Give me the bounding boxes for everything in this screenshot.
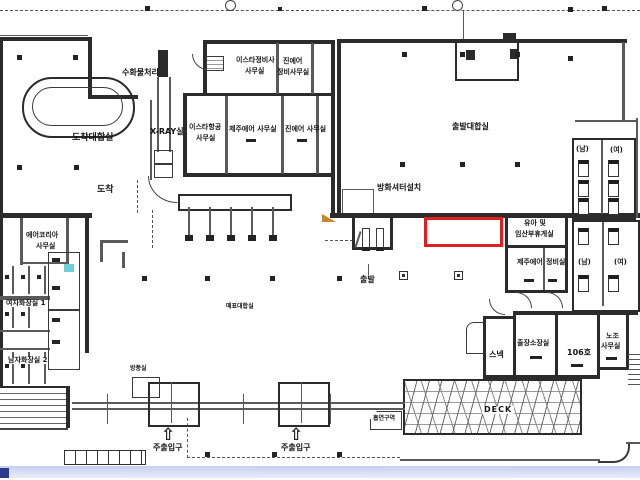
label-women-restroom: 여자화장실 1: [6, 300, 46, 307]
grid-tick: [602, 6, 607, 11]
baggage-carousel-inner: [32, 87, 123, 126]
label-manager-room: 출장소장실: [517, 340, 549, 347]
wall: [183, 93, 187, 177]
wall: [0, 35, 88, 36]
fixture-dot: [21, 364, 25, 368]
label-women: (여): [610, 147, 623, 154]
column-marker: [399, 271, 408, 280]
belt-foot: [206, 235, 214, 241]
belt-support: [230, 207, 232, 236]
label-smoking: 흡연구역: [373, 416, 395, 422]
wall: [0, 218, 3, 390]
entrance-arrow-icon: ⇧: [289, 425, 303, 445]
wall: [0, 37, 92, 41]
label-ticket-hall: 매표대합실: [226, 304, 254, 310]
wall: [185, 173, 335, 177]
bottom-band: [0, 466, 640, 478]
wall: [601, 140, 603, 214]
door-arc: [547, 292, 563, 308]
conveyor-line: [169, 77, 171, 152]
fixture-dot: [21, 312, 25, 316]
label-main-entrance: 주출입구: [281, 444, 310, 452]
porch-mullion: [171, 382, 172, 423]
wall: [0, 348, 50, 350]
toilet-fixture: [608, 275, 619, 292]
fixture-dot: [37, 275, 41, 279]
door-leaf: [362, 228, 370, 251]
toilet-fixture: [608, 228, 619, 245]
grid-tick: [422, 6, 427, 11]
wall: [331, 40, 335, 216]
wall: [505, 218, 508, 293]
label-main-entrance: 주출입구: [153, 444, 182, 452]
apron-curve: [598, 443, 630, 463]
fixture-dot: [5, 275, 9, 279]
label-maint-room: 정비실: [546, 259, 565, 266]
toilet-fixture: [578, 160, 589, 177]
label-eastar-office-2: 사무실: [196, 135, 215, 142]
wall: [337, 40, 341, 215]
fixture-dot: [52, 258, 60, 262]
wall: [575, 120, 638, 122]
wall: [390, 218, 393, 250]
column-marker: [460, 162, 465, 167]
fixture-dot: [21, 275, 25, 279]
wall: [513, 311, 638, 315]
toilet-fixture: [608, 180, 619, 197]
leader-line: [342, 189, 374, 190]
column-line: [107, 394, 108, 424]
label-men: (남): [578, 259, 591, 266]
stair-core: [455, 40, 519, 81]
wall: [20, 218, 23, 265]
label-women: (여): [614, 259, 627, 266]
wall: [100, 240, 103, 262]
column-marker: [17, 55, 22, 60]
label-underline: [530, 356, 542, 359]
column-marker: [74, 165, 79, 170]
column-marker: [400, 162, 405, 167]
wall: [543, 248, 545, 292]
label-underline: [606, 357, 617, 360]
column-marker: [142, 276, 147, 281]
wall: [565, 218, 568, 293]
label-eastar-maint-1: 이스타정비사: [236, 57, 275, 64]
label-aircoria-2: 사무실: [36, 243, 55, 250]
wall: [150, 100, 152, 180]
wall: [352, 247, 393, 250]
wall: [636, 118, 638, 218]
label-fire-shutter: 방화셔터설치: [377, 184, 421, 192]
toilet-fixture: [578, 180, 589, 197]
belt-foot: [185, 235, 193, 241]
wall: [316, 96, 319, 174]
label-underline: [548, 279, 557, 282]
label-union-2: 사무실: [601, 343, 620, 350]
label-eastar-maint-2: 사무실: [245, 68, 264, 75]
label-arrival-hall: 도착대합실: [72, 134, 113, 143]
highlight-box[interactable]: [424, 217, 503, 247]
column-marker: [205, 276, 210, 281]
belt-foot: [269, 235, 277, 241]
wall: [122, 252, 125, 268]
apron-line: [400, 459, 600, 461]
leader-line: [342, 189, 343, 215]
label-departure-hall: 출발대합실: [452, 123, 489, 131]
door-arc: [489, 299, 505, 315]
label-infant-2: 임산부휴게실: [515, 231, 554, 238]
stall-wall: [28, 266, 30, 294]
label-snack: 스넥: [489, 351, 504, 359]
porch-mullion: [301, 382, 302, 423]
belt-support: [272, 207, 274, 236]
column-line: [243, 394, 244, 424]
windbreak-box: [132, 377, 160, 398]
column-marker: [272, 452, 277, 457]
entrance-arrow-icon: ⇧: [161, 425, 175, 445]
floor-plan: 도착대합실 수화물처리장 도착 X-RAY실 이스타정비사 사무실 진에어 정비…: [0, 0, 640, 480]
column-marker: [73, 55, 78, 60]
wall: [0, 330, 50, 332]
door-arc: [516, 292, 532, 308]
wall: [0, 37, 3, 218]
toilet-fixture: [608, 198, 619, 215]
wall-block: [466, 50, 475, 60]
wall: [513, 311, 516, 378]
teal-marker: [64, 264, 74, 272]
column-marker: [568, 56, 573, 61]
column-marker: [460, 52, 465, 57]
toilet-fixture: [608, 160, 619, 177]
column-marker: [454, 271, 463, 280]
column-marker: [337, 276, 342, 281]
column-marker: [515, 162, 520, 167]
ramp-wedge: [322, 214, 336, 222]
colonnade-line: [72, 402, 405, 404]
toilet-fixture: [578, 228, 589, 245]
label-aircoria-1: 에어코리아: [26, 232, 58, 239]
wall: [311, 43, 314, 94]
label-jinair-office: 진에어 사무실: [285, 126, 326, 133]
wall: [622, 42, 625, 120]
leader-line: [373, 189, 374, 215]
column-marker: [402, 52, 407, 57]
label-eastar-office-1: 이스타항공: [189, 124, 221, 131]
dashed-wall: [325, 240, 353, 241]
wall: [505, 245, 567, 248]
stairs: [628, 350, 640, 388]
label-men-restroom: 남자화장실 2: [8, 357, 48, 364]
bottom-band-accent: [0, 468, 9, 478]
entry-nook: [466, 322, 484, 354]
label-union-1: 노조: [606, 333, 619, 340]
grid-tick: [568, 7, 573, 12]
column-marker: [270, 276, 275, 281]
label-arrival: 도착: [97, 186, 114, 195]
label-underline: [246, 139, 256, 142]
column-line: [330, 394, 331, 424]
wall: [0, 213, 92, 218]
label-jinair-maint-2: 정비사무실: [277, 69, 309, 76]
grid-bubble: [225, 0, 236, 11]
grid-line: [0, 10, 640, 11]
xray-machine: [154, 150, 173, 164]
wall: [602, 222, 604, 306]
label-jejuair-room: 제주에어: [517, 259, 543, 266]
fixture-dot: [5, 364, 9, 368]
conveyor-line: [157, 77, 159, 152]
ramp: [0, 388, 68, 430]
fixture-dot: [52, 318, 60, 322]
label-deck: DECK: [482, 406, 514, 414]
wall: [597, 367, 629, 370]
boundary-dashed: [187, 457, 400, 458]
grid-tick: [145, 6, 150, 11]
belt-support: [188, 207, 190, 236]
wall: [281, 96, 284, 174]
label-infant-1: 유아 및: [524, 220, 546, 227]
label-windbreak: 방풍실: [130, 366, 147, 372]
dashed-wall: [137, 180, 138, 213]
label-departure: 출발: [360, 276, 375, 284]
column-marker: [515, 52, 520, 57]
wall: [483, 316, 516, 319]
belt-foot: [248, 235, 256, 241]
fixture-dot: [52, 340, 60, 344]
label-xray: X-RAY실: [150, 128, 184, 136]
conveyor-curve: [148, 176, 177, 203]
door-leaf: [376, 228, 384, 251]
cell-row: [64, 450, 146, 465]
arrival-belt: [178, 194, 292, 211]
apron-line: [626, 442, 640, 444]
belt-foot: [227, 235, 235, 241]
toilet-fixture: [578, 275, 589, 292]
label-underline: [571, 364, 583, 367]
elevator: [206, 56, 224, 71]
wall: [100, 240, 128, 243]
fixture-dot: [5, 312, 9, 316]
label-room106: 106호: [567, 349, 591, 357]
door-swing: [354, 231, 361, 248]
wall: [505, 290, 567, 293]
stall-wall: [12, 266, 14, 294]
grid-bubble: [452, 0, 463, 11]
colonnade-line: [72, 408, 405, 410]
label-jejuair-office: 제주에어 사무실: [229, 126, 277, 133]
toilet-fixture: [578, 198, 589, 215]
belt-support: [209, 207, 211, 236]
grid-line: [463, 11, 464, 40]
column-marker: [17, 165, 22, 170]
entrance-porch: [278, 382, 330, 427]
wall: [225, 96, 228, 174]
belt-support: [251, 207, 253, 236]
leader-line: [368, 264, 369, 275]
wall: [555, 311, 558, 378]
column-marker: [205, 452, 210, 457]
label-underline: [297, 139, 307, 142]
boundary-dashed: [187, 418, 188, 458]
wall: [66, 386, 70, 428]
wall: [85, 218, 89, 353]
conveyor-block: [158, 50, 168, 77]
label-underline: [524, 279, 534, 282]
grid-tick: [278, 7, 282, 11]
fixture-dot: [52, 286, 60, 290]
dashed-wall: [152, 210, 153, 248]
label-men: (남): [576, 146, 589, 153]
column-marker: [337, 452, 342, 457]
stall-wall: [44, 266, 46, 294]
label-jinair-maint-1: 진에어: [283, 58, 302, 65]
